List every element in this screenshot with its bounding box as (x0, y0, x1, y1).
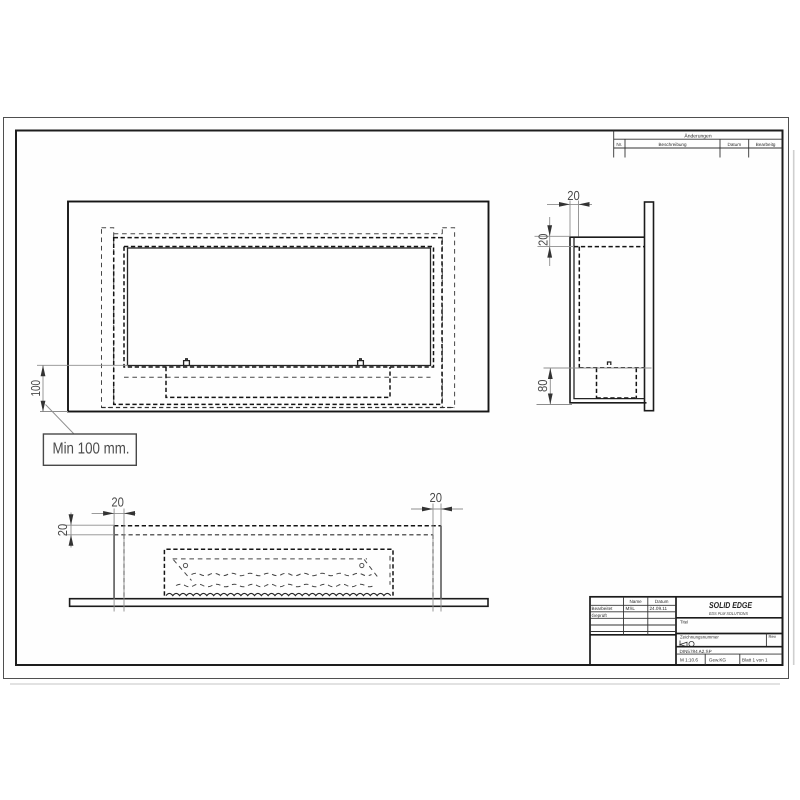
svg-text:Titel: Titel (680, 620, 688, 625)
svg-text:24.09.11: 24.09.11 (650, 606, 668, 611)
svg-text:SOLID EDGE: SOLID EDGE (709, 600, 752, 610)
svg-text:Datum: Datum (728, 142, 742, 147)
svg-text:Gew.KG: Gew.KG (709, 657, 727, 662)
svg-text:Nr.: Nr. (616, 142, 622, 147)
svg-text:Blatt 1 von 1: Blatt 1 von 1 (742, 657, 768, 662)
svg-text:20: 20 (111, 495, 124, 510)
svg-text:Zeichnungsnummer: Zeichnungsnummer (680, 634, 719, 639)
svg-text:20: 20 (55, 524, 70, 537)
svg-text:20: 20 (430, 490, 443, 505)
svg-text:80: 80 (535, 380, 550, 393)
svg-text:Beschreibung: Beschreibung (658, 142, 687, 147)
svg-text:Geprüft: Geprüft (592, 613, 608, 618)
svg-text:Bearbeitg: Bearbeitg (756, 142, 776, 147)
svg-text:Name: Name (629, 599, 642, 604)
svg-text:Bearbeitet: Bearbeitet (592, 606, 614, 611)
svg-text:MSL: MSL (626, 606, 636, 611)
svg-text:20: 20 (567, 188, 580, 203)
svg-text:Min 100 mm.: Min 100 mm. (53, 441, 130, 458)
svg-text:Datum: Datum (655, 599, 669, 604)
svg-text:DIN5784 A2.SP: DIN5784 A2.SP (680, 649, 712, 654)
svg-text:Rev: Rev (769, 634, 777, 639)
svg-text:20: 20 (535, 234, 550, 247)
svg-text:100: 100 (28, 380, 43, 397)
svg-text:Änderungen: Änderungen (684, 133, 711, 140)
svg-text:M 1:10.6: M 1:10.6 (680, 657, 698, 662)
svg-text:EDS PLM SOLUTIONS: EDS PLM SOLUTIONS (709, 611, 748, 616)
